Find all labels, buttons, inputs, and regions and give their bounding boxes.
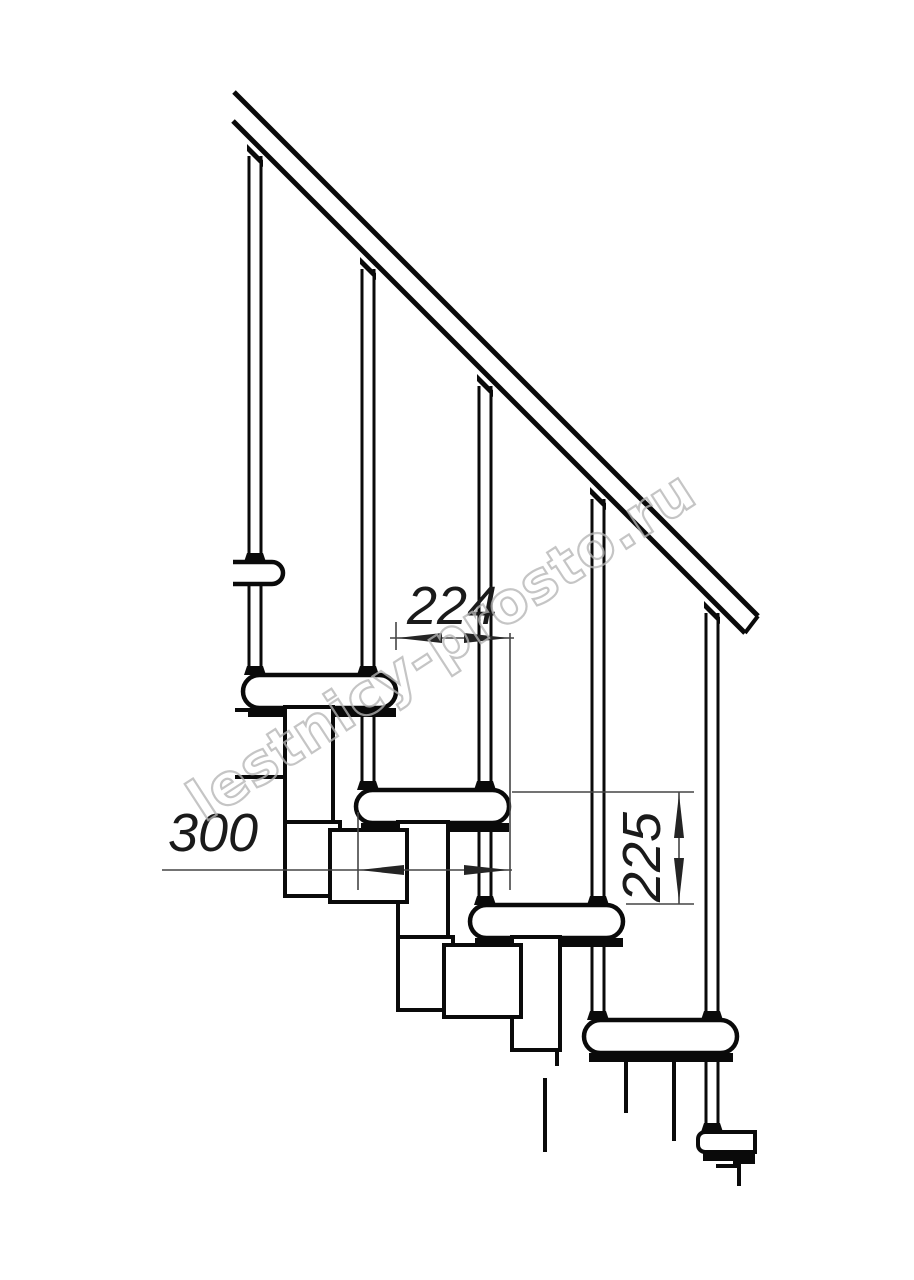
step-4-trim <box>589 1053 733 1062</box>
flange-b5-step5 <box>701 1123 723 1132</box>
flange-b4-step3 <box>587 896 609 905</box>
flange-b3-step2 <box>474 781 496 790</box>
step-2-tread <box>356 790 509 823</box>
dim-225-label: 225 <box>612 811 672 903</box>
flange-b2-step2 <box>357 781 379 790</box>
flange-b1-landing <box>244 553 266 562</box>
step-5-trim-edge <box>733 1154 755 1164</box>
flange-b5-step4 <box>701 1011 723 1020</box>
flange-b4-step4 <box>587 1011 609 1020</box>
step-5-tread-partial <box>698 1132 755 1152</box>
upper-landing-edge <box>233 562 283 584</box>
step-4-tread <box>584 1020 737 1053</box>
staircase-drawing-page: 224 300 225 lestnicy-prosto.ru <box>0 0 914 1280</box>
module-box-c2 <box>444 945 521 1017</box>
staircase-technical-drawing: 224 300 225 lestnicy-prosto.ru <box>0 0 914 1280</box>
step-3-tread <box>470 905 623 938</box>
flange-b3-step3 <box>474 896 496 905</box>
flange-b1-step1 <box>244 666 266 675</box>
